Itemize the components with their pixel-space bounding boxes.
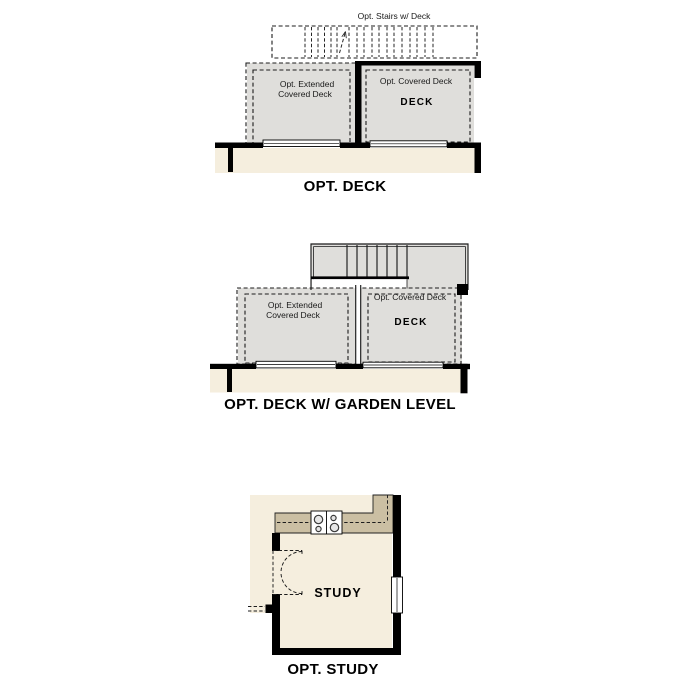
study-bottom-wall bbox=[272, 648, 401, 655]
patio-door-window bbox=[263, 140, 340, 147]
figure-opt-study: STUDY OPT. STUDY bbox=[248, 495, 403, 678]
burner bbox=[316, 526, 321, 531]
floor-plan-canvas: Opt. Stairs w/ Deck Opt. Extended Covere… bbox=[0, 0, 687, 687]
floor-plan-sheet: Opt. Stairs w/ Deck Opt. Extended Covere… bbox=[0, 0, 687, 687]
house-right-wall bbox=[461, 364, 468, 394]
interior-wall-stub bbox=[228, 148, 233, 172]
figure-opt-deck: Opt. Stairs w/ Deck Opt. Extended Covere… bbox=[215, 11, 481, 195]
extended-deck-label-line1: Opt. Extended bbox=[268, 300, 323, 310]
covered-deck-label: Opt. Covered Deck bbox=[374, 292, 447, 302]
burner bbox=[314, 515, 322, 523]
patio-door-window bbox=[256, 361, 336, 368]
figure-opt-deck-garden-level: Opt. Extended Covered Deck Opt. Covered … bbox=[210, 244, 470, 413]
study-left-wall-upper bbox=[272, 533, 280, 551]
deck-divider bbox=[356, 285, 361, 364]
stair-edge-line bbox=[311, 276, 409, 279]
covered-deck-label: Opt. Covered Deck bbox=[380, 76, 453, 86]
patio-door-window bbox=[363, 362, 443, 368]
deck-top-wall bbox=[355, 61, 481, 66]
deck-right-wall-stub bbox=[475, 61, 482, 78]
figure-title-opt-deck-garden: OPT. DECK W/ GARDEN LEVEL bbox=[224, 396, 456, 413]
optional-stairs-outline bbox=[272, 26, 477, 58]
burner bbox=[331, 515, 336, 520]
exterior-cutout bbox=[249, 613, 272, 655]
deck-room-label: DECK bbox=[394, 317, 427, 328]
extended-deck-label-line2: Covered Deck bbox=[266, 310, 321, 320]
house-interior bbox=[210, 369, 461, 393]
house-interior bbox=[215, 148, 475, 173]
cooktop bbox=[311, 511, 342, 534]
interior-wall-stub bbox=[227, 369, 232, 392]
stair-treads bbox=[305, 27, 433, 57]
deck-divider-wall bbox=[355, 61, 362, 143]
patio-door-window bbox=[370, 141, 447, 147]
study-right-wall bbox=[393, 495, 401, 655]
deck-post bbox=[457, 284, 468, 295]
figure-title-opt-deck: OPT. DECK bbox=[304, 178, 387, 195]
extended-deck-label-line2: Covered Deck bbox=[278, 89, 333, 99]
house-right-wall bbox=[475, 143, 482, 174]
study-window bbox=[392, 577, 403, 613]
extended-deck-label-line1: Opt. Extended bbox=[280, 79, 335, 89]
stairs-option-label: Opt. Stairs w/ Deck bbox=[358, 11, 431, 21]
wall-stub bbox=[266, 605, 273, 614]
study-room-label: STUDY bbox=[314, 586, 361, 600]
figure-title-opt-study: OPT. STUDY bbox=[287, 661, 378, 678]
study-left-wall-lower bbox=[272, 594, 280, 655]
deck-room-label: DECK bbox=[400, 97, 433, 108]
stair-direction-arrow bbox=[340, 32, 347, 54]
burner bbox=[330, 523, 338, 531]
